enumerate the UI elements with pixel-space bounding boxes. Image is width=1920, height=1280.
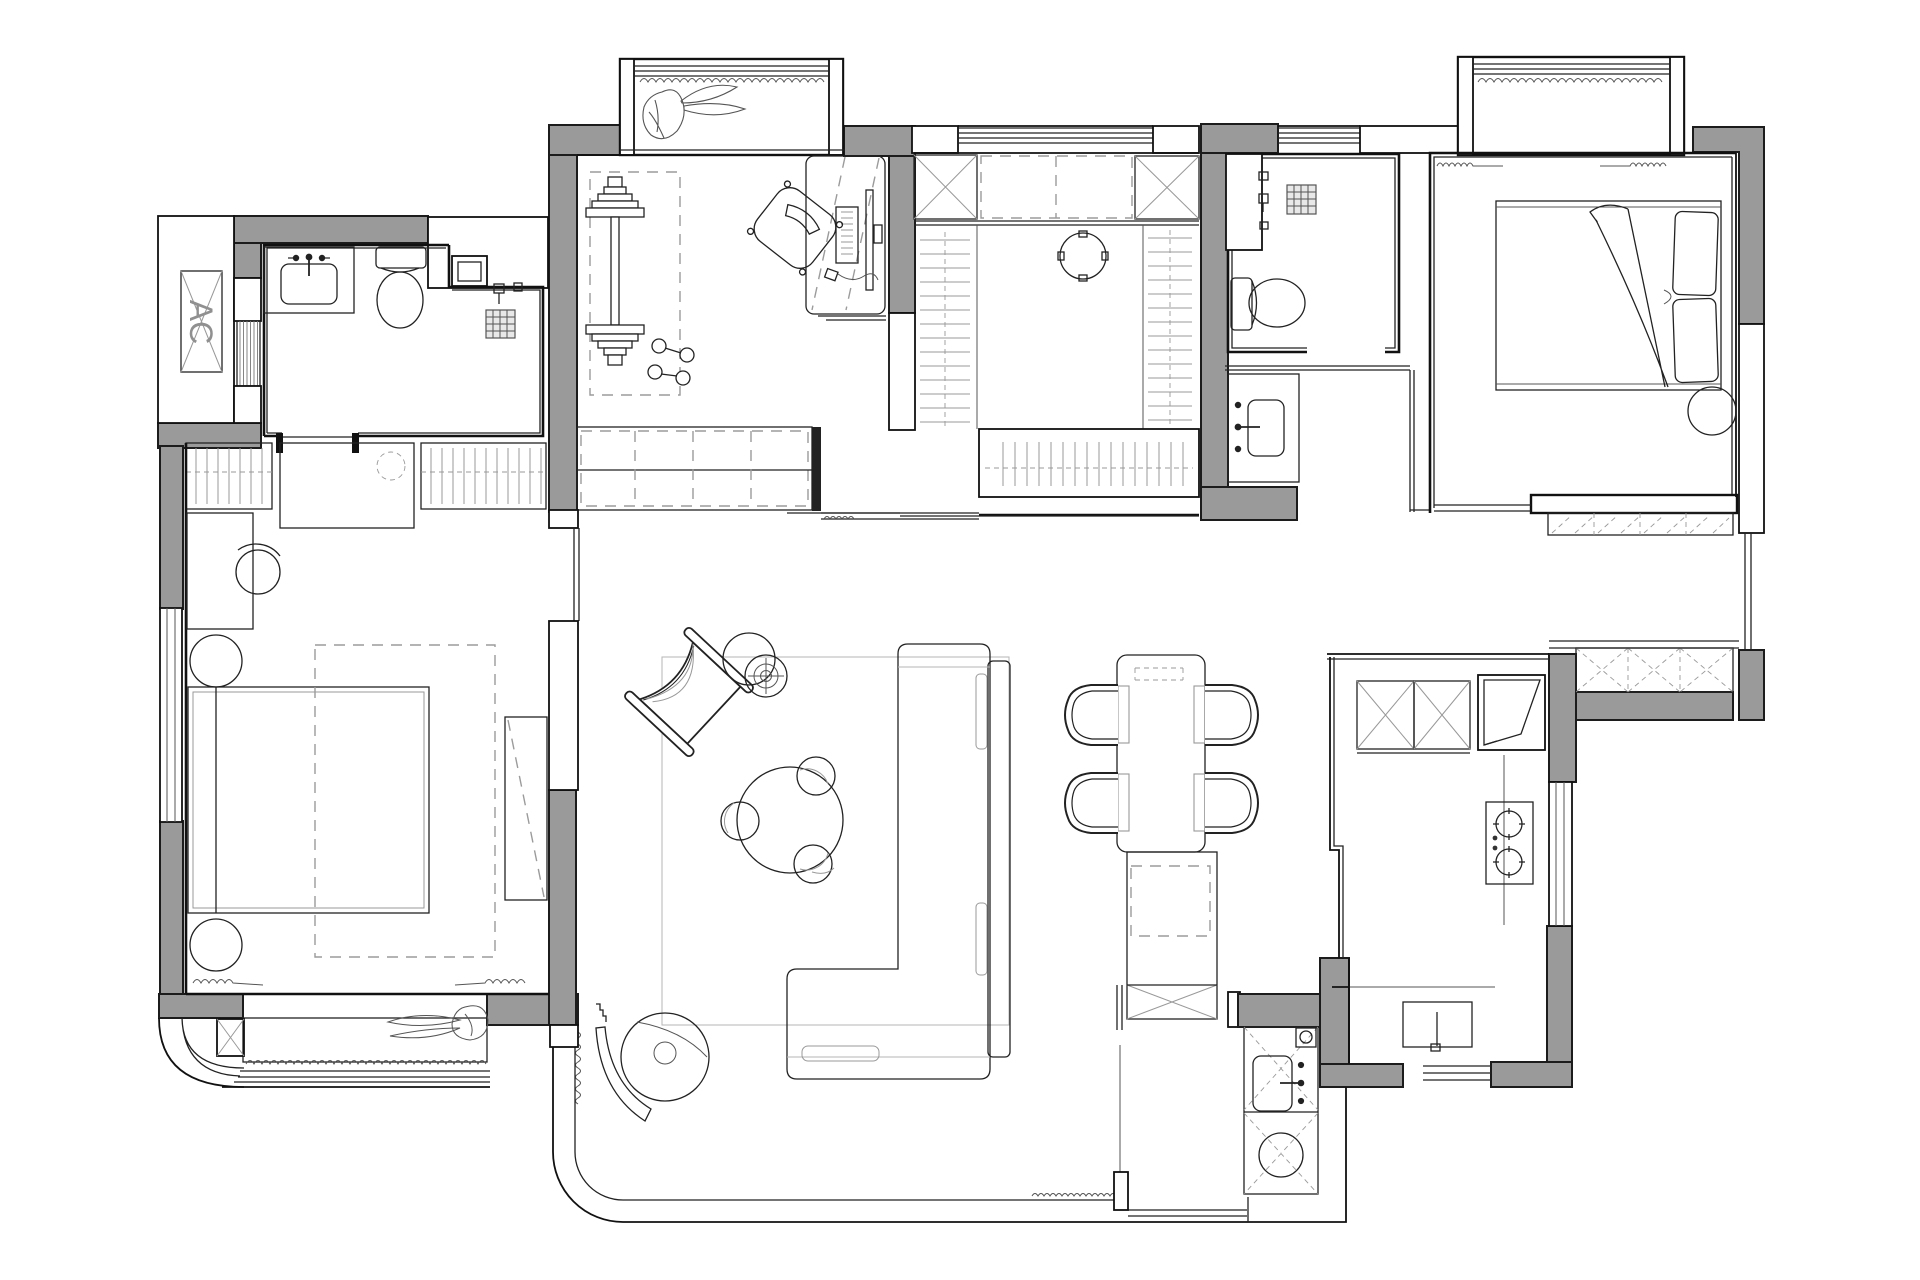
svg-text:AC: AC [183, 300, 219, 344]
